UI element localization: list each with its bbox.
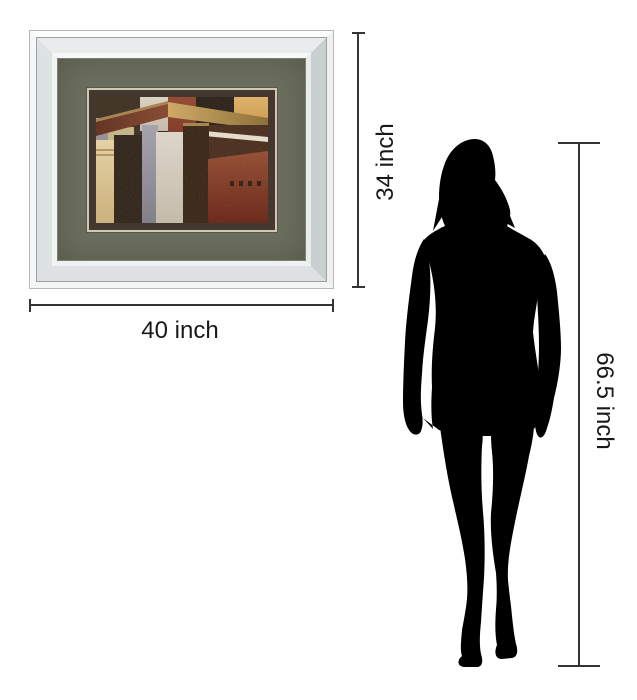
silhouette-body bbox=[423, 139, 545, 436]
artwork-blocks bbox=[96, 97, 268, 223]
width-right-tick bbox=[332, 299, 334, 312]
silhouette-left-leg bbox=[440, 427, 485, 667]
silhouette-right-leg bbox=[491, 424, 534, 659]
frame-bevel-band bbox=[37, 38, 326, 281]
person-height-dimension-line bbox=[578, 142, 580, 667]
width-left-tick bbox=[29, 299, 31, 312]
product-dimension-diagram: 40 inch 34 inch 66.5 inch bbox=[0, 0, 637, 700]
artwork-liner bbox=[89, 90, 275, 230]
height-top-tick bbox=[352, 32, 365, 34]
height-bottom-tick bbox=[352, 286, 365, 288]
width-dimension-label: 40 inch bbox=[100, 318, 260, 344]
mat-board bbox=[57, 58, 306, 261]
person-height-top-cap bbox=[558, 142, 600, 144]
frame-inner-lip bbox=[52, 53, 311, 266]
silhouette-left-arm bbox=[403, 239, 430, 435]
mirror-frame bbox=[30, 31, 333, 288]
height-dimension-line bbox=[357, 32, 359, 288]
width-dimension-line bbox=[29, 304, 334, 306]
silhouette-right-arm bbox=[535, 254, 561, 438]
female-silhouette bbox=[395, 135, 565, 670]
person-height-bottom-cap bbox=[558, 665, 600, 667]
person-height-dimension-label: 66.5 inch bbox=[591, 335, 617, 467]
silhouette-shapes bbox=[403, 139, 561, 667]
abstract-artwork bbox=[96, 97, 268, 223]
